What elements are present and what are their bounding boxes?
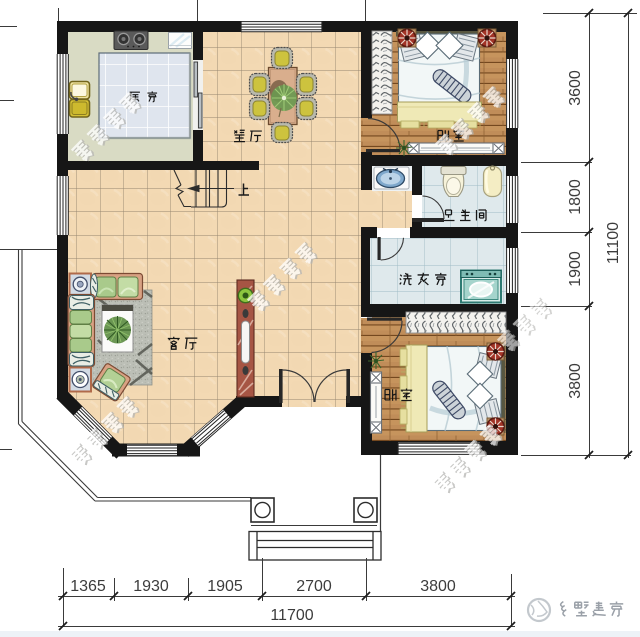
svg-text:3800: 3800	[420, 578, 456, 595]
svg-text:1800: 1800	[567, 179, 584, 215]
svg-text:1930: 1930	[133, 578, 169, 595]
svg-text:1900: 1900	[567, 251, 584, 287]
svg-text:11700: 11700	[270, 607, 313, 624]
svg-text:2700: 2700	[296, 578, 332, 595]
svg-text:3600: 3600	[567, 70, 584, 106]
svg-text:11100: 11100	[605, 222, 622, 264]
svg-text:1365: 1365	[70, 578, 106, 595]
svg-text:1905: 1905	[207, 578, 243, 595]
svg-text:3800: 3800	[567, 363, 584, 399]
